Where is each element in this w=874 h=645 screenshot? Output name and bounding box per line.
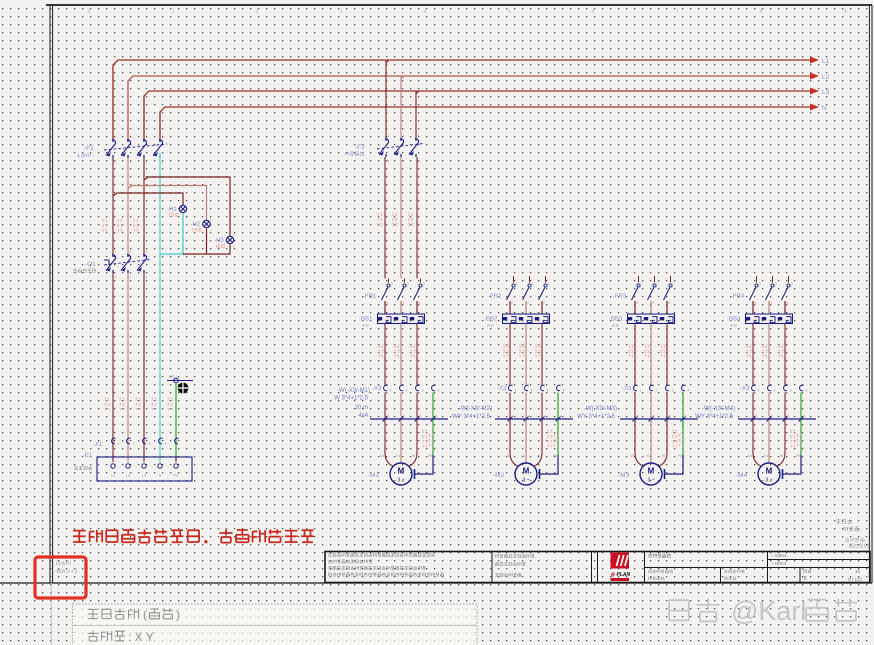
svg-text:e: e: [611, 572, 615, 579]
svg-text:1: 1: [233, 233, 235, 237]
svg-text:1: 1: [186, 202, 188, 206]
svg-text:-FR4: -FR4: [731, 294, 745, 300]
svg-text:@Karl: @Karl: [731, 596, 806, 626]
svg-text:3: 3: [403, 134, 405, 138]
svg-text:A-B: A-B: [487, 323, 494, 328]
svg-text:1: 1: [407, 282, 409, 286]
svg-text:-F1: -F1: [84, 145, 94, 152]
svg-text:1: 1: [791, 282, 793, 286]
svg-text:2: 2: [255, 9, 258, 15]
svg-text:20 m: 20 m: [355, 405, 368, 411]
svg-text:3: 3: [339, 9, 342, 15]
svg-text:9: 9: [843, 9, 846, 15]
svg-text:2: 2: [636, 301, 638, 305]
svg-text:-W(-X3/-M3): -W(-X3/-M3): [584, 406, 617, 412]
svg-text:W1: W1: [780, 454, 785, 458]
svg-text:1: 1: [759, 282, 761, 286]
svg-text:4: 4: [77, 154, 80, 160]
svg-text:M: M: [766, 467, 773, 476]
svg-text:-X1: -X1: [93, 442, 103, 448]
svg-text:-FR2: -FR2: [488, 294, 502, 300]
svg-text:-M3: -M3: [618, 472, 630, 479]
svg-text:-M1: -M1: [368, 472, 380, 479]
svg-text:-BOC+ / 2: -BOC+ / 2: [55, 569, 78, 575]
svg-text:6: 6: [591, 9, 594, 15]
svg-text:2: 2: [402, 301, 404, 305]
svg-text:6: 6: [146, 161, 148, 165]
svg-text:U1: U1: [748, 454, 752, 458]
svg-text:-W(-X3/-M4): -W(-X3/-M4): [702, 406, 735, 412]
svg-text:5: 5: [418, 134, 420, 138]
svg-text:PE: PE: [678, 454, 683, 458]
svg-text:4: 4: [688, 389, 690, 393]
svg-text:2: 2: [774, 389, 776, 393]
svg-text:W1: W1: [537, 454, 542, 458]
svg-text:1: 1: [115, 250, 117, 254]
svg-text:WY 3*4+1*2.5: WY 3*4+1*2.5: [577, 414, 615, 420]
svg-text:2: 2: [754, 301, 756, 305]
svg-text:PE: PE: [553, 454, 558, 458]
svg-text:L3: L3: [142, 474, 146, 478]
svg-text:3 ~: 3 ~: [647, 478, 654, 484]
svg-text:1: 1: [548, 282, 550, 286]
svg-text:PLAN: PLAN: [617, 572, 631, 578]
svg-text:1: 1: [388, 134, 390, 138]
svg-text:2: 2: [511, 301, 513, 305]
svg-text:L2: L2: [822, 74, 830, 81]
svg-text:= GB01: = GB01: [771, 553, 787, 558]
svg-text:5: 5: [146, 135, 148, 139]
svg-text:4: 4: [423, 9, 426, 15]
svg-text:L3: L3: [822, 89, 830, 96]
svg-text:2: 2: [233, 246, 235, 250]
svg-text:-M4: -M4: [736, 472, 748, 479]
svg-text:6: 6: [418, 160, 420, 164]
svg-text:4: 4: [165, 442, 167, 446]
svg-text:N: N: [159, 474, 162, 478]
svg-text:2: 2: [115, 276, 117, 280]
svg-text:-M2: -M2: [493, 472, 505, 479]
svg-text:WY 3*4+1*2.5: WY 3*4+1*2.5: [695, 414, 733, 420]
svg-text:3: 3: [672, 389, 674, 393]
svg-text:: X Y: : X Y: [128, 630, 154, 644]
svg-text:-X3: -X3: [497, 386, 507, 392]
svg-text:-H2: -H2: [191, 222, 201, 228]
svg-text:2: 2: [652, 301, 654, 305]
svg-text:U1: U1: [505, 454, 509, 458]
svg-text:WY 3*4+1*2.5: WY 3*4+1*2.5: [452, 414, 490, 420]
svg-text:M: M: [648, 467, 655, 476]
svg-text:3: 3: [149, 442, 151, 446]
svg-text:A-B: A-B: [362, 323, 369, 328]
svg-text:5: 5: [146, 250, 148, 254]
svg-text:1: 1: [210, 217, 212, 221]
svg-text:4x4: 4x4: [358, 413, 368, 419]
svg-text:2: 2: [115, 161, 117, 165]
svg-text:-Q1: -Q1: [85, 261, 96, 268]
svg-text:-X3: -X3: [622, 386, 632, 392]
svg-text:0: 0: [87, 9, 90, 15]
svg-text:+ H0C1: + H0C1: [771, 561, 787, 566]
svg-text:3: 3: [130, 250, 132, 254]
svg-text:2: 2: [418, 301, 420, 305]
svg-text:U1: U1: [630, 454, 634, 458]
svg-text:1: 1: [391, 282, 393, 286]
svg-text:1: 1: [532, 282, 534, 286]
svg-text:3: 3: [547, 389, 549, 393]
svg-text:1: 1: [390, 389, 392, 393]
svg-text:2: 2: [133, 442, 135, 446]
svg-text:7: 7: [162, 135, 164, 139]
svg-text:7: 7: [675, 9, 678, 15]
svg-text:2: 2: [656, 389, 658, 393]
svg-text:2: 2: [770, 301, 772, 305]
svg-text:2: 2: [527, 301, 529, 305]
svg-text:2: 2: [668, 301, 670, 305]
svg-text:-FR3: -FR3: [613, 294, 627, 300]
svg-text:3 ~: 3 ~: [397, 478, 404, 484]
svg-text:U1: U1: [380, 454, 384, 458]
svg-text:1: 1: [171, 9, 174, 15]
svg-text:2: 2: [786, 301, 788, 305]
svg-text:1: 1: [775, 282, 777, 286]
svg-text:W1: W1: [412, 454, 417, 458]
svg-text:-X3: -X3: [740, 386, 750, 392]
svg-text:1: 1: [515, 389, 517, 393]
svg-text:PE: PE: [796, 454, 801, 458]
svg-text:(: (: [143, 608, 147, 622]
svg-text:2: 2: [543, 301, 545, 305]
svg-text:8: 8: [759, 9, 762, 15]
svg-text:3: 3: [422, 389, 424, 393]
svg-text:6: 6: [146, 276, 148, 280]
svg-text:4: 4: [806, 389, 808, 393]
svg-text:2: 2: [388, 160, 390, 164]
svg-text:): ): [176, 608, 180, 622]
svg-text:V1: V1: [521, 454, 525, 458]
svg-text:15: 15: [855, 569, 861, 574]
svg-text:A-B: A-B: [730, 323, 737, 328]
svg-text:V1: V1: [764, 454, 768, 458]
svg-text:M: M: [398, 467, 405, 476]
svg-text:-F2: -F2: [355, 144, 365, 151]
svg-text:1: 1: [758, 389, 760, 393]
svg-text:-W(-X3/-M2): -W(-X3/-M2): [459, 406, 492, 412]
svg-text:3: 3: [790, 389, 792, 393]
svg-text:W 3*4+1*2.5: W 3*4+1*2.5: [334, 396, 369, 402]
svg-text:4: 4: [563, 389, 565, 393]
svg-text:5: 5: [507, 9, 510, 15]
svg-text:3: 3: [130, 135, 132, 139]
svg-text:-H3: -H3: [214, 238, 224, 244]
svg-text:L1: L1: [822, 58, 830, 65]
svg-text:A-B: A-B: [612, 323, 619, 328]
svg-text:2: 2: [210, 230, 212, 234]
svg-text:1: 1: [640, 389, 642, 393]
svg-text:V1: V1: [396, 454, 400, 458]
svg-text:1: 1: [118, 442, 120, 446]
svg-text:W1: W1: [662, 454, 667, 458]
svg-text:1: 1: [423, 282, 425, 286]
svg-text:-W(-X3/-M1): -W(-X3/-M1): [337, 388, 370, 394]
svg-text:-H1: -H1: [167, 207, 177, 213]
svg-text:-X3: -X3: [372, 386, 382, 392]
svg-text:4: 4: [130, 161, 132, 165]
svg-text:4: 4: [438, 389, 440, 393]
svg-text:2: 2: [406, 389, 408, 393]
svg-text:2: 2: [186, 215, 188, 219]
svg-text:1: 1: [641, 282, 643, 286]
svg-text:2: 2: [531, 389, 533, 393]
svg-text:M: M: [523, 467, 530, 476]
svg-text:-FR1: -FR1: [363, 294, 377, 300]
svg-text:1: 1: [673, 282, 675, 286]
svg-text:4: 4: [403, 160, 405, 164]
svg-text:L2: L2: [126, 474, 130, 478]
svg-text:3 ~: 3 ~: [765, 478, 772, 484]
svg-text:PE: PE: [173, 474, 179, 478]
svg-text:1: 1: [657, 282, 659, 286]
svg-text:N: N: [822, 105, 827, 112]
svg-text:-E1: -E1: [83, 453, 93, 459]
svg-text:8: 8: [162, 161, 164, 165]
svg-text:PE:1: PE:1: [169, 374, 178, 379]
svg-text:L1: L1: [111, 474, 115, 478]
svg-text:3 ~: 3 ~: [522, 478, 529, 484]
svg-text:V1: V1: [646, 454, 650, 458]
svg-text:1: 1: [516, 282, 518, 286]
svg-text:2: 2: [386, 301, 388, 305]
svg-text:8 / 122: 8 / 122: [848, 577, 862, 582]
svg-text:PE: PE: [428, 454, 433, 458]
svg-text:4: 4: [130, 276, 132, 280]
svg-text:1: 1: [115, 135, 117, 139]
